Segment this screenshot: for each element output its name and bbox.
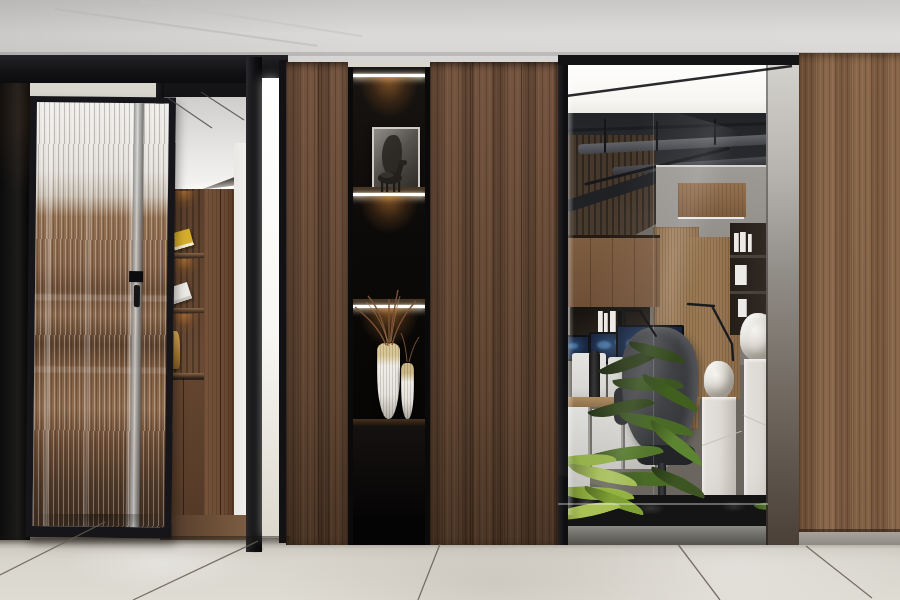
niche-shelf — [348, 419, 430, 426]
wood-panel-seam — [521, 66, 522, 543]
glass-seam-highlight — [558, 503, 768, 505]
door-hinge-bracket — [129, 271, 143, 282]
tall-cabinet — [204, 189, 234, 540]
right-panel-base — [799, 532, 900, 545]
decor-vase-small — [401, 363, 414, 419]
shelf-divider — [730, 291, 768, 294]
door-floor-shadow — [26, 514, 172, 538]
white-binder — [738, 299, 747, 317]
display-niche — [348, 67, 430, 545]
glass-edge-reflection — [766, 55, 802, 545]
interior-scene — [0, 0, 900, 600]
door-header-beam — [0, 55, 288, 83]
left-wall-base-shadow — [0, 536, 290, 545]
niche-led-glow — [352, 77, 426, 132]
niche-lower-void — [352, 426, 426, 545]
wood-panel-right — [799, 53, 900, 532]
niche-frame-left — [348, 67, 353, 545]
wood-panel-seam — [318, 66, 319, 543]
wood-panel-seam — [470, 66, 471, 543]
cabinet-seam — [220, 189, 221, 540]
glass-top-frame — [558, 55, 802, 65]
door-handle — [134, 285, 140, 307]
glass-partition-office — [558, 55, 802, 545]
wood-panel-wall — [286, 62, 348, 545]
niche-led-glow — [352, 196, 426, 246]
niche-frame-top — [348, 67, 430, 73]
fluted-glass-door — [25, 96, 176, 539]
pivot-door-post — [246, 57, 262, 552]
decor-vase-large — [377, 343, 400, 419]
wood-panel-wall — [430, 62, 560, 545]
wall-washer-light-strip — [262, 78, 279, 538]
post-floor-shadow — [242, 548, 268, 555]
ceiling-hanger-rod — [604, 119, 606, 153]
door-stile-reflection — [129, 103, 143, 527]
